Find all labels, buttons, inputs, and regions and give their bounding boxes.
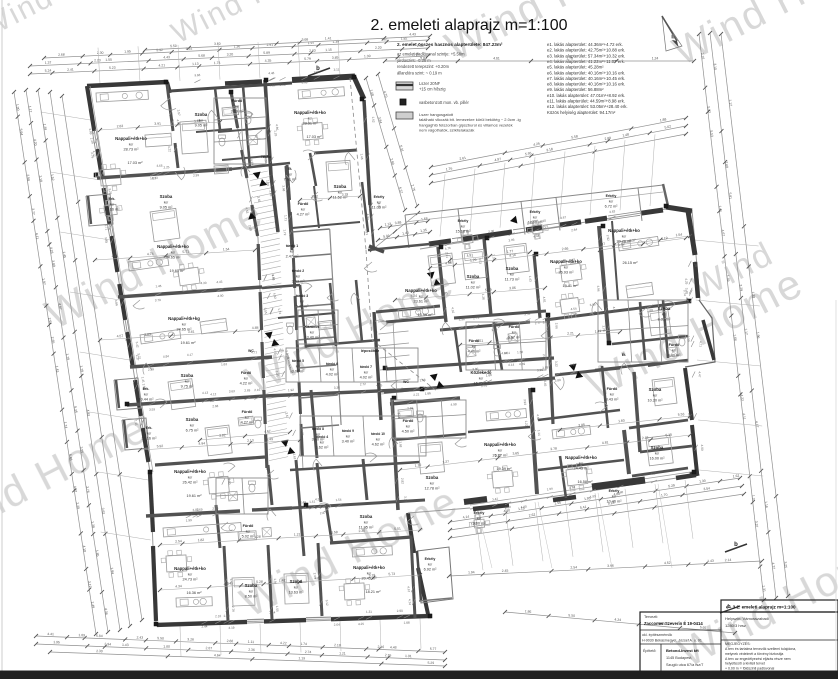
svg-text:1.28: 1.28: [481, 294, 486, 301]
svg-text:3.83: 3.83: [192, 508, 199, 512]
svg-text:2.68: 2.68: [58, 53, 65, 57]
svg-text:ker: ker: [288, 173, 293, 177]
svg-text:tároló 5: tároló 5: [292, 359, 304, 363]
svg-text:2.30: 2.30: [686, 335, 690, 341]
svg-text:1.46: 1.46: [360, 153, 364, 160]
svg-text:3.87: 3.87: [598, 242, 605, 247]
svg-text:ker: ker: [188, 476, 193, 480]
svg-text:4.70: 4.70: [383, 90, 389, 98]
svg-text:26.93 m²: 26.93 m²: [559, 271, 575, 275]
svg-text:1.45: 1.45: [62, 251, 67, 258]
svg-text:3.59: 3.59: [149, 407, 156, 411]
svg-text:e4. lakás alapterület: 41.22m²: e4. lakás alapterület: 41.22m²+11.07 erk…: [547, 59, 625, 64]
svg-text:16.58 m²: 16.58 m²: [578, 480, 594, 484]
svg-text:23.61 m²: 23.61 m²: [414, 300, 430, 304]
svg-text:1.28: 1.28: [419, 378, 426, 383]
svg-text:az emelet padlóvonal szintje:: az emelet padlóvonal szintje: +5.58m: [397, 52, 465, 57]
svg-text:ker: ker: [147, 432, 152, 436]
svg-text:3.91: 3.91: [154, 121, 161, 125]
svg-text:15.75 m²: 15.75 m²: [474, 382, 490, 386]
svg-text:3.55: 3.55: [524, 312, 531, 317]
svg-text:2.25: 2.25: [163, 165, 170, 169]
svg-text:3.16: 3.16: [700, 52, 705, 59]
svg-text:1.82: 1.82: [198, 538, 205, 542]
svg-text:4.22: 4.22: [366, 214, 370, 221]
svg-text:3.20: 3.20: [227, 52, 234, 56]
svg-text:tároló 2: tároló 2: [292, 269, 304, 273]
svg-text:tároló 6: tároló 6: [326, 362, 338, 366]
svg-text:5.73: 5.73: [388, 572, 395, 576]
svg-text:ker: ker: [235, 105, 240, 109]
svg-text:Nappali+étk+ko: Nappali+étk+ko: [174, 469, 206, 474]
svg-text:1.22: 1.22: [524, 420, 528, 427]
svg-text:2.72: 2.72: [360, 382, 367, 386]
svg-text:1.40: 1.40: [402, 231, 409, 236]
svg-text:4.67: 4.67: [406, 586, 411, 593]
svg-text:2.84: 2.84: [571, 227, 578, 232]
svg-text:2.76: 2.76: [90, 152, 95, 159]
svg-text:1.95: 1.95: [53, 640, 60, 644]
svg-text:1.16: 1.16: [764, 501, 769, 508]
svg-text:2.74: 2.74: [305, 650, 312, 654]
svg-text:4.27 m²: 4.27 m²: [297, 213, 311, 217]
svg-text:Építtető:: Építtető:: [643, 648, 656, 653]
svg-text:A terv az engedélyezési eljárá: A terv az engedélyezési eljárás része ne…: [725, 657, 791, 661]
svg-text:24.43 m²: 24.43 m²: [574, 467, 590, 471]
svg-text:1.58: 1.58: [331, 530, 338, 534]
svg-text:1.17: 1.17: [28, 106, 33, 113]
svg-text:17.03 m²: 17.03 m²: [307, 135, 323, 139]
svg-text:tároló 4: tároló 4: [316, 435, 328, 439]
svg-text:1.94: 1.94: [110, 567, 115, 574]
svg-text:5.77: 5.77: [430, 647, 437, 651]
svg-text:3.78: 3.78: [550, 447, 557, 452]
svg-text:1.21: 1.21: [294, 532, 301, 536]
svg-text:vasbetonzott mon. vb. pillér: vasbetonzott mon. vb. pillér: [419, 100, 469, 105]
svg-text:4.13: 4.13: [202, 391, 209, 395]
svg-text:2.90: 2.90: [280, 83, 286, 87]
svg-text:5.81: 5.81: [728, 192, 733, 199]
svg-text:6.92 m²: 6.92 m²: [424, 568, 438, 572]
svg-text:2.15: 2.15: [385, 653, 392, 657]
svg-text:é - 3 2. emeleti alaprajz m=1: é - 3 2. emeleti alaprajz m=1:100: [726, 605, 796, 610]
svg-text:4.20: 4.20: [33, 139, 38, 146]
svg-text:Szoba: Szoba: [181, 373, 194, 378]
svg-text:1.45: 1.45: [726, 275, 731, 282]
svg-text:5.51: 5.51: [394, 527, 401, 531]
svg-text:1.94: 1.94: [468, 570, 475, 574]
svg-text:nem vágothatók, szikitelakazák: nem vágothatók, szikitelakazák: [419, 128, 474, 133]
svg-text:11.03 m²: 11.03 m²: [372, 206, 387, 210]
svg-text:26.27 m²: 26.27 m²: [493, 454, 509, 458]
svg-text:4.46 m²: 4.46 m²: [468, 350, 482, 354]
svg-text:2.54: 2.54: [224, 581, 231, 585]
svg-text:É: É: [671, 33, 674, 39]
svg-text:3.55: 3.55: [263, 307, 268, 314]
svg-text:3.97 m²: 3.97 m²: [508, 336, 522, 340]
svg-text:3.38: 3.38: [301, 80, 307, 84]
svg-text:Fürdő: Fürdő: [607, 387, 618, 391]
svg-text:1.60: 1.60: [618, 419, 625, 424]
svg-text:ker: ker: [300, 300, 305, 304]
svg-text:tároló 1: tároló 1: [286, 244, 298, 248]
svg-text:2.72: 2.72: [244, 132, 249, 139]
svg-text:ker: ker: [182, 323, 187, 327]
svg-text:4.32: 4.32: [450, 307, 455, 314]
svg-text:3.90: 3.90: [570, 362, 577, 367]
svg-text:2.47 m²: 2.47 m²: [286, 255, 300, 259]
svg-text:4.54: 4.54: [570, 307, 577, 312]
svg-text:Erkély: Erkély: [374, 195, 385, 199]
svg-text:3.85: 3.85: [332, 56, 339, 60]
svg-text:1.94: 1.94: [546, 487, 553, 492]
svg-text:2.58: 2.58: [314, 70, 320, 74]
svg-text:Nappali+étk+ko: Nappali+étk+ko: [565, 455, 597, 460]
svg-text:10.46 m²: 10.46 m²: [607, 500, 623, 504]
svg-text:2.54: 2.54: [570, 565, 577, 569]
svg-text:1.70: 1.70: [661, 493, 668, 498]
svg-text:2.64: 2.64: [334, 623, 340, 627]
svg-text:3.58: 3.58: [26, 174, 31, 181]
svg-text:26.15 m²: 26.15 m²: [623, 261, 639, 265]
svg-text:ker: ker: [609, 200, 614, 204]
svg-text:2.21: 2.21: [413, 392, 420, 397]
svg-text:2. emelet összes hasznos alapt: 2. emelet összes hasznos alapterülete: 8…: [397, 42, 503, 47]
svg-text:11.02 m²: 11.02 m²: [466, 286, 481, 290]
svg-text:3.86: 3.86: [509, 286, 516, 291]
svg-text:1.54: 1.54: [223, 247, 230, 251]
svg-text:1.11: 1.11: [248, 640, 255, 644]
svg-text:4.88: 4.88: [252, 326, 259, 330]
svg-text:3.82: 3.82: [219, 433, 226, 438]
svg-text:3.93: 3.93: [523, 399, 527, 406]
svg-text:4.44: 4.44: [533, 234, 540, 239]
svg-text:11.95 m²: 11.95 m²: [359, 526, 374, 530]
svg-text:1.50: 1.50: [517, 350, 524, 354]
svg-text:3.12: 3.12: [269, 83, 275, 87]
svg-text:5.24: 5.24: [45, 69, 52, 73]
svg-text:1.41: 1.41: [325, 36, 332, 40]
svg-text:10.20 m²: 10.20 m²: [648, 399, 664, 403]
svg-text:15.18 m²: 15.18 m²: [456, 230, 472, 234]
svg-text:Tervezti:: Tervezti:: [644, 615, 658, 619]
svg-text:5.02 m²: 5.02 m²: [242, 535, 256, 539]
svg-text:4.49: 4.49: [112, 254, 119, 258]
svg-text:3.22: 3.22: [554, 361, 558, 367]
svg-text:Nappali+étk+ko: Nappali+étk+ko: [115, 136, 147, 141]
svg-text:okl. építészmérnök: okl. építészmérnök: [642, 633, 672, 637]
svg-text:3.83: 3.83: [609, 209, 616, 214]
svg-text:4.41: 4.41: [47, 632, 54, 636]
svg-text:1.26: 1.26: [273, 130, 278, 137]
svg-text:4.99: 4.99: [589, 494, 596, 499]
svg-text:2.59: 2.59: [148, 367, 155, 371]
svg-text:2.69: 2.69: [647, 308, 654, 313]
svg-text:Helyszín: Vámosszabadi: Helyszín: Vámosszabadi: [725, 616, 769, 621]
svg-text:4.24: 4.24: [614, 618, 621, 623]
svg-text:4.84: 4.84: [163, 354, 170, 358]
svg-text:Nappali+étk+ko: Nappali+étk+ko: [174, 566, 206, 571]
svg-text:2.82: 2.82: [400, 478, 404, 485]
svg-text:Betond-Invest kft: Betond-Invest kft: [666, 648, 699, 653]
svg-text:1.74: 1.74: [277, 308, 282, 315]
svg-text:4.29: 4.29: [315, 576, 322, 580]
svg-text:2.69: 2.69: [389, 158, 395, 166]
svg-text:2.39: 2.39: [227, 478, 232, 485]
svg-text:20.76 m²: 20.76 m²: [617, 240, 633, 244]
svg-text:+ 0.00 m = földszinti padlóvon: + 0.00 m = földszinti padlóvonal: [725, 667, 774, 671]
svg-text:5.68: 5.68: [198, 54, 205, 58]
svg-text:1.28: 1.28: [254, 535, 261, 539]
svg-text:Közlekedő: Közlekedő: [471, 370, 492, 375]
svg-text:1.96: 1.96: [756, 332, 761, 339]
svg-text:19.61 m²: 19.61 m²: [187, 494, 203, 498]
svg-text:1.68: 1.68: [398, 441, 402, 448]
svg-text:2.90: 2.90: [397, 609, 403, 613]
svg-text:Fürdő: Fürdő: [403, 419, 414, 423]
svg-text:3.99: 3.99: [88, 128, 93, 135]
svg-text:Nappali+étk+ko: Nappali+étk+ko: [353, 565, 385, 570]
svg-text:1.21: 1.21: [339, 651, 346, 655]
svg-text:Kazános: Kazános: [305, 325, 320, 329]
svg-text:4.94: 4.94: [501, 351, 508, 355]
svg-text:ker: ker: [376, 438, 381, 442]
svg-text:2.66: 2.66: [562, 247, 569, 252]
svg-text:16.36 m²: 16.36 m²: [187, 591, 203, 595]
svg-text:1.31: 1.31: [762, 585, 767, 592]
svg-text:Erkély: Erkély: [530, 210, 541, 214]
svg-text:5.92: 5.92: [157, 444, 164, 448]
svg-text:Szoba: Szoba: [651, 445, 664, 450]
svg-text:5.89: 5.89: [263, 51, 270, 55]
svg-text:3.76: 3.76: [85, 486, 90, 493]
svg-text:1.74: 1.74: [300, 642, 307, 646]
svg-text:13.63 m²: 13.63 m²: [289, 591, 305, 595]
svg-text:Szoba: Szoba: [467, 274, 480, 279]
svg-text:Nappali+étk+ko: Nappali+étk+ko: [294, 110, 326, 115]
svg-text:3.47 m²: 3.47 m²: [296, 305, 310, 309]
svg-text:ker: ker: [164, 201, 169, 205]
svg-text:1.80: 1.80: [163, 644, 170, 648]
svg-text:3.87: 3.87: [560, 215, 567, 220]
svg-text:4.91: 4.91: [466, 253, 473, 258]
svg-text:4.22: 4.22: [740, 394, 745, 401]
svg-text:4.22: 4.22: [280, 641, 287, 645]
svg-text:1.71: 1.71: [283, 215, 287, 222]
svg-text:ker: ker: [330, 368, 335, 372]
svg-text:Szoba: Szoba: [649, 387, 662, 392]
svg-text:H-9030 Békásmegyei, József A.: H-9030 Békásmegyei, József A. u. 91: [642, 639, 702, 643]
svg-text:ker: ker: [533, 216, 538, 220]
svg-text:Fürdő: Fürdő: [241, 371, 252, 375]
svg-text:3.85: 3.85: [104, 237, 109, 244]
svg-text:2.29: 2.29: [90, 137, 95, 144]
svg-text:1.10: 1.10: [414, 463, 421, 468]
svg-text:Erkély: Erkély: [425, 557, 436, 561]
svg-text:1.38: 1.38: [91, 521, 96, 528]
svg-text:3.48: 3.48: [685, 288, 689, 294]
svg-text:melynek védelmét a törvény biz: melynek védelmét a törvény biztosítja: [725, 652, 783, 656]
svg-text:2.63: 2.63: [542, 354, 546, 360]
svg-text:tároló 10: tároló 10: [371, 432, 385, 436]
svg-text:3.62: 3.62: [101, 507, 106, 514]
svg-text:1145 Budapest,: 1145 Budapest,: [666, 656, 692, 660]
svg-text:állandóra szint: ~ 0.19 m: állandóra szint: ~ 0.19 m: [397, 70, 442, 75]
svg-text:3.62 m²: 3.62 m²: [316, 446, 330, 450]
svg-text:5.35: 5.35: [73, 406, 78, 413]
svg-text:4.50 m²: 4.50 m²: [402, 430, 416, 434]
svg-text:Lszer 20NF: Lszer 20NF: [419, 81, 441, 86]
svg-text:ker: ker: [498, 449, 503, 453]
svg-text:4.48: 4.48: [390, 645, 397, 649]
svg-text:2.30: 2.30: [96, 649, 103, 653]
svg-text:2.23: 2.23: [94, 58, 101, 62]
svg-text:1.31: 1.31: [366, 610, 372, 614]
svg-text:4.67: 4.67: [264, 429, 271, 434]
svg-text:Szoba: Szoba: [426, 475, 439, 480]
svg-text:ker: ker: [655, 452, 660, 456]
svg-text:Erkély: Erkély: [458, 219, 469, 223]
svg-text:2.10: 2.10: [215, 614, 221, 618]
svg-text:2.45: 2.45: [502, 569, 509, 573]
svg-text:4.47: 4.47: [697, 371, 701, 377]
svg-text:4.27 m²: 4.27 m²: [241, 421, 255, 425]
svg-text:1.46: 1.46: [155, 284, 162, 288]
svg-text:4.52: 4.52: [664, 561, 671, 565]
svg-text:24.65 m²: 24.65 m²: [166, 256, 182, 260]
svg-text:4.80: 4.80: [700, 445, 704, 451]
svg-text:4.22 m²: 4.22 m²: [240, 382, 254, 386]
svg-text:e12. lakás alapterület: 53.05m: e12. lakás alapterület: 53.05m²+28.40 er…: [547, 104, 628, 109]
svg-text:5.29: 5.29: [427, 661, 434, 665]
svg-text:e9. lakás alapterület: 56.88m²: e9. lakás alapterület: 56.88m²: [547, 87, 604, 92]
svg-text:5.49: 5.49: [485, 288, 492, 293]
svg-text:4.02 m²: 4.02 m²: [360, 376, 374, 380]
svg-text:1.37: 1.37: [45, 61, 52, 65]
svg-text:4.77: 4.77: [771, 562, 776, 569]
svg-text:5.65: 5.65: [700, 625, 707, 630]
svg-text:4.81: 4.81: [542, 296, 547, 303]
svg-text:2.18: 2.18: [694, 261, 698, 267]
svg-text:1.16: 1.16: [397, 412, 401, 419]
svg-text:4.25: 4.25: [358, 622, 364, 626]
svg-text:4.64: 4.64: [214, 653, 221, 657]
svg-text:3.80: 3.80: [51, 260, 56, 267]
svg-text:5.92: 5.92: [156, 48, 163, 52]
svg-text:Nappali+étk+ko: Nappali+étk+ko: [550, 259, 582, 264]
svg-text:e7. lakás alapterület: 40.16m²: e7. lakás alapterület: 40.16m²+10.45 erk…: [547, 76, 625, 81]
svg-text:2.18: 2.18: [334, 643, 341, 647]
svg-text:1.58: 1.58: [417, 44, 424, 48]
svg-text:Fürdő: Fürdő: [298, 202, 309, 206]
svg-text:Nappali+étk+kg: Nappali+étk+kg: [168, 316, 200, 321]
svg-text:1.90: 1.90: [15, 104, 20, 111]
svg-text:3.85: 3.85: [578, 423, 585, 428]
svg-text:3.29: 3.29: [739, 284, 744, 291]
svg-text:1.19: 1.19: [298, 656, 305, 660]
svg-text:16.00 m²: 16.00 m²: [650, 457, 666, 461]
svg-text:e2. lakás alapterület: 42.75m²: e2. lakás alapterület: 42.75m²+10.88 erk…: [547, 48, 625, 53]
svg-text:1.74: 1.74: [63, 421, 68, 428]
svg-text:Erkély: Erkély: [606, 194, 617, 198]
svg-text:1.55: 1.55: [105, 58, 112, 62]
svg-text:1.91: 1.91: [405, 654, 412, 658]
svg-text:Wind Home: Wind Home: [38, 188, 271, 338]
svg-text:5.29: 5.29: [668, 483, 675, 488]
svg-text:4.61: 4.61: [493, 57, 500, 61]
svg-text:3.10: 3.10: [713, 63, 718, 70]
svg-text:2.21: 2.21: [567, 331, 574, 336]
svg-text:4.35: 4.35: [315, 497, 322, 501]
svg-text:2.69: 2.69: [244, 388, 251, 392]
svg-text:1.15: 1.15: [325, 48, 332, 52]
svg-text:Wind Home: Wind Home: [666, 0, 838, 74]
svg-text:2.70: 2.70: [601, 325, 606, 332]
svg-text:5.31: 5.31: [399, 145, 405, 153]
svg-text:1.97: 1.97: [41, 278, 46, 285]
svg-text:4.74: 4.74: [147, 252, 154, 256]
svg-text:1.43: 1.43: [122, 643, 129, 647]
svg-text:2.77: 2.77: [535, 321, 542, 326]
svg-text:ker: ker: [406, 425, 411, 429]
svg-text:lépcsőház: lépcsőház: [361, 349, 379, 353]
svg-text:3.26: 3.26: [187, 637, 194, 641]
svg-text:3.96: 3.96: [596, 285, 601, 292]
svg-text:5.84: 5.84: [420, 57, 427, 61]
svg-text:1.17: 1.17: [728, 99, 733, 106]
svg-text:e11. lakás alapterület: 44.59m: e11. lakás alapterület: 44.59m²+8.98 erk…: [547, 99, 625, 104]
svg-text:4.40 m²: 4.40 m²: [668, 354, 682, 358]
svg-text:8.43 m²: 8.43 m²: [606, 398, 620, 402]
svg-text:tároló 7: tároló 7: [360, 365, 372, 369]
svg-text:3.66: 3.66: [156, 164, 163, 168]
svg-text:3.25: 3.25: [783, 561, 788, 568]
svg-text:4.21: 4.21: [158, 63, 165, 67]
svg-text:8.33 m²: 8.33 m²: [658, 318, 672, 322]
svg-text:1.30: 1.30: [364, 54, 371, 58]
svg-text:ker: ker: [622, 235, 627, 239]
svg-text:Erkély: Erkély: [609, 489, 620, 493]
svg-text:19.39 m²: 19.39 m²: [497, 467, 513, 471]
svg-text:1.33: 1.33: [751, 291, 756, 298]
svg-text:3.60: 3.60: [214, 42, 221, 46]
svg-text:2.66: 2.66: [554, 323, 558, 329]
svg-text:Erk.: Erk.: [109, 197, 116, 201]
svg-text:1.39: 1.39: [42, 123, 47, 130]
svg-text:9.05 m²: 9.05 m²: [160, 206, 174, 210]
svg-text:3.18: 3.18: [38, 175, 43, 182]
svg-text:3.19 m²: 3.19 m²: [231, 110, 245, 114]
svg-text:2.54: 2.54: [175, 539, 182, 543]
svg-text:3.77: 3.77: [31, 208, 36, 215]
svg-text:2.75: 2.75: [410, 184, 416, 192]
svg-text:rendezett terepszint: +0.20m: rendezett terepszint: +0.20m: [397, 64, 450, 69]
svg-text:7.81 m²: 7.81 m²: [284, 178, 298, 182]
svg-text:6.72 m²: 6.72 m²: [605, 205, 619, 209]
svg-text:17.03 m²: 17.03 m²: [128, 161, 144, 165]
svg-text:1.13: 1.13: [192, 62, 199, 66]
svg-text:2.19: 2.19: [642, 436, 649, 441]
svg-text:Tároló: Tároló: [261, 155, 271, 159]
svg-text:4.10: 4.10: [82, 545, 87, 552]
svg-text:1.48: 1.48: [369, 89, 375, 97]
svg-text:4.11: 4.11: [742, 413, 747, 420]
svg-text:3.57: 3.57: [176, 109, 181, 116]
svg-text:1.23: 1.23: [150, 176, 157, 180]
svg-text:8.50 m²: 8.50 m²: [245, 595, 259, 599]
svg-text:Szoba: Szoba: [245, 583, 258, 588]
svg-text:4.67: 4.67: [721, 229, 726, 236]
